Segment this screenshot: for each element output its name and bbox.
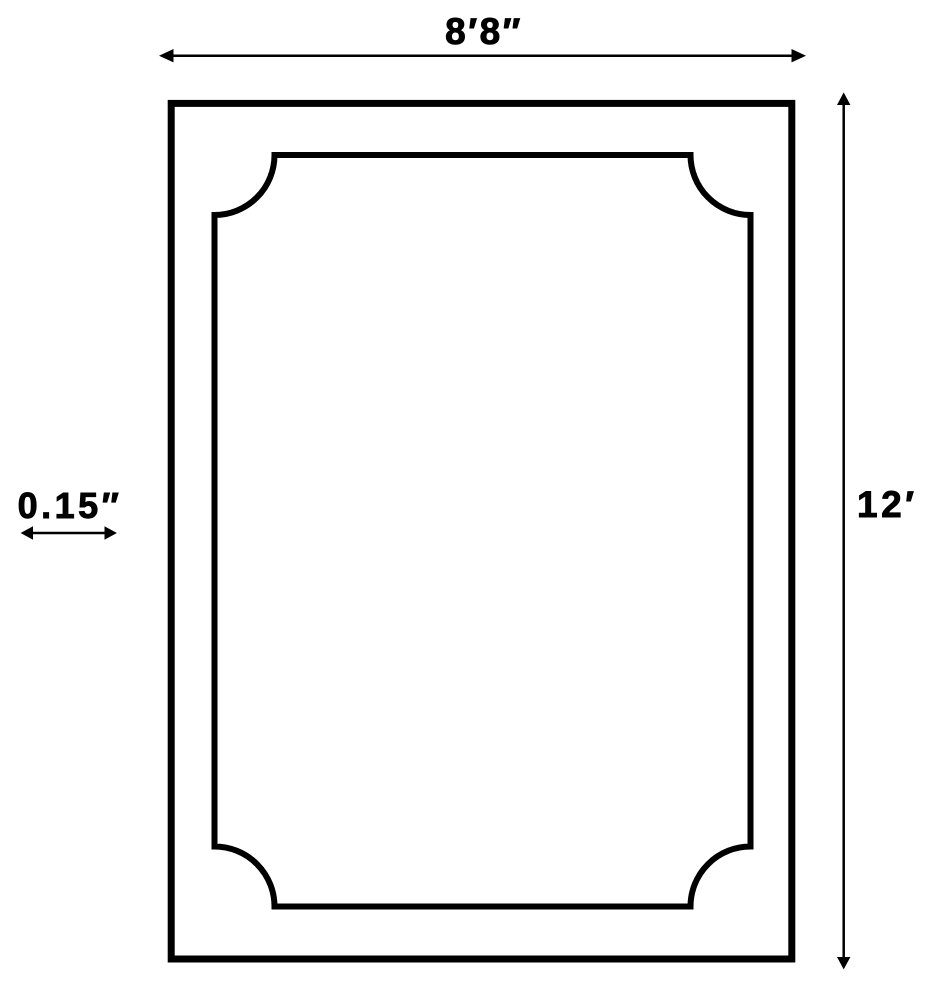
svg-text:12′: 12′	[857, 484, 918, 525]
svg-text:8′8″: 8′8″	[445, 11, 523, 52]
svg-text:0.15″: 0.15″	[18, 485, 123, 526]
